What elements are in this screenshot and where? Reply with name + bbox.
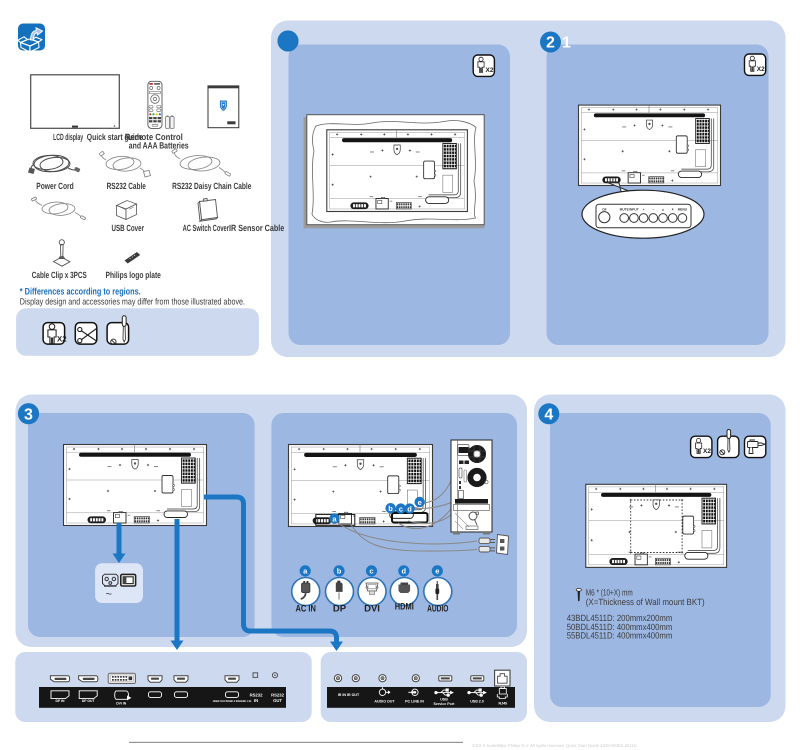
svg-text:DP: DP [333,603,347,614]
svg-text:1: 1 [562,35,571,52]
svg-text:AUDIO OUT: AUDIO OUT [374,699,395,703]
svg-text:RS232: RS232 [271,693,284,698]
svg-text:USB 2.0: USB 2.0 [470,699,484,703]
svg-text:Philips logo plate: Philips logo plate [106,270,161,280]
svg-text:▲: ▲ [661,208,664,212]
svg-text:c: c [399,504,403,513]
svg-text:RS232 Cable: RS232 Cable [107,181,146,191]
svg-text:AC Switch Cover: AC Switch Cover [183,223,230,233]
svg-text:PC LINE IN: PC LINE IN [405,699,424,703]
svg-text:X2: X2 [57,335,67,344]
svg-text:DVI: DVI [364,603,380,614]
svg-text:MUTE: MUTE [620,208,629,212]
svg-text:MENU: MENU [678,208,688,212]
svg-text:Service Port: Service Port [434,702,456,706]
svg-text:(X=Thickness of Wall mount BK: (X=Thickness of Wall mount BKT) [586,597,705,607]
svg-text:RS232: RS232 [250,693,263,698]
svg-text:AC IN: AC IN [296,603,316,614]
svg-text:b: b [337,567,342,576]
svg-text:e: e [435,567,439,576]
svg-text:c: c [369,567,373,576]
svg-text:HDMI: HDMI [395,602,414,613]
svg-text:2: 2 [546,35,555,52]
svg-text:d: d [407,504,412,513]
svg-text:DP IN: DP IN [56,699,66,703]
svg-text:USB Cover: USB Cover [112,223,145,233]
svg-text:AUDIO: AUDIO [427,603,448,614]
svg-text:IR IN IR OUT: IR IN IR OUT [338,693,360,697]
svg-text:and AAA Batteries: and AAA Batteries [129,141,189,151]
svg-text:d: d [402,567,407,576]
svg-text:HDMI OUT/HDMI 2 IN/HDMI 1 IN: HDMI OUT/HDMI 2 IN/HDMI 1 IN [213,700,252,703]
svg-text:2019 © Koninklijke Philips N.V: 2019 © Koninklijke Philips N.V. All righ… [472,743,637,748]
svg-text:−: − [652,208,654,212]
svg-text:OUT: OUT [273,698,282,703]
svg-text:DVI IN: DVI IN [116,702,127,706]
svg-text:RS232 Daisy Chain Cable: RS232 Daisy Chain Cable [172,181,251,191]
svg-text:DP OUT: DP OUT [82,699,96,703]
svg-text:INPUT: INPUT [629,208,639,212]
svg-text:⏻/I: ⏻/I [602,208,606,212]
svg-text:LCD display: LCD display [53,132,83,142]
svg-text:▼: ▼ [671,208,674,212]
svg-text:+: + [643,208,645,212]
svg-text:~: ~ [106,589,112,601]
svg-text:IR Sensor Cable: IR Sensor Cable [229,223,284,233]
svg-text:4: 4 [544,407,553,424]
svg-text:b: b [388,504,393,513]
svg-text:e: e [418,498,422,507]
svg-text:X2: X2 [757,66,765,73]
svg-text:55BDL4511D: 400mmx400mm: 55BDL4511D: 400mmx400mm [567,630,673,640]
svg-text:IN: IN [254,698,258,703]
svg-text:X2: X2 [486,67,494,74]
svg-text:Display design and accessories: Display design and accessories may diffe… [20,296,245,306]
svg-text:RJ45: RJ45 [499,702,508,706]
svg-text:Power Cord: Power Cord [36,181,73,191]
svg-text:X2: X2 [703,448,711,455]
svg-text:Cable Clip x 3PCS: Cable Clip x 3PCS [32,270,87,280]
svg-text:3: 3 [24,406,33,423]
